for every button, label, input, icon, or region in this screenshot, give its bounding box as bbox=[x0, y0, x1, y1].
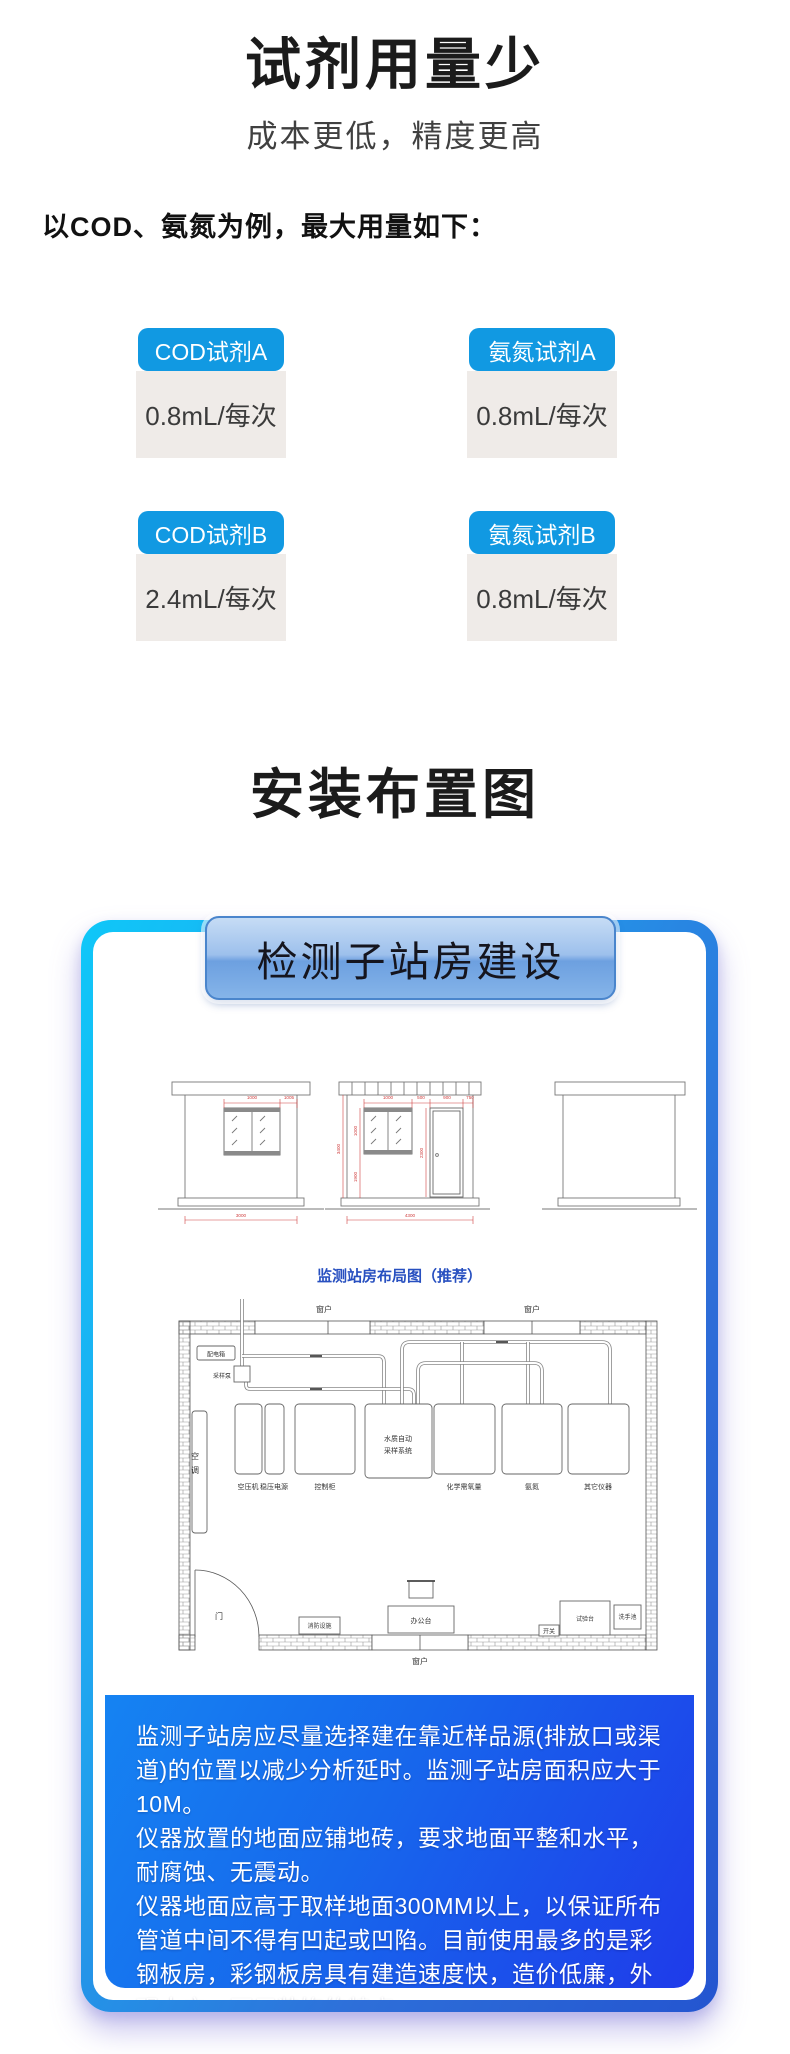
floor-plan-drawing: 窗户 窗户 窗户 门 配电箱 采样泵 空调 水质自动 采样系统 空压机 稳压电源… bbox=[162, 1294, 667, 1669]
reagent-value: 0.8mL/每次 bbox=[136, 371, 286, 458]
reagent-label-badge: COD试剂A bbox=[138, 328, 284, 371]
dim-label: 4300 bbox=[405, 1213, 416, 1218]
door-label: 门 bbox=[215, 1611, 223, 1621]
note-paragraph: 监测子站房应尽量选择建在靠近样品源(排放口或渠道)的位置以减少分析延时。监测子站… bbox=[136, 1719, 666, 1821]
reagent-label-badge: 氨氮试剂A bbox=[469, 328, 615, 371]
station-card: 1000 1005 3000 3400 1000 500 900 750 100… bbox=[81, 920, 718, 2012]
bench-label: 试验台 bbox=[576, 1615, 594, 1623]
equipment-label: 稳压电源 bbox=[260, 1482, 288, 1491]
dim-label: 1000 bbox=[247, 1095, 258, 1100]
dim-label: 1005 bbox=[284, 1095, 295, 1100]
station-card-body: 1000 1005 3000 3400 1000 500 900 750 100… bbox=[93, 932, 706, 2000]
page-title: 试剂用量少 bbox=[0, 20, 790, 101]
ac-label: 空调 bbox=[191, 1451, 200, 1480]
dim-label: 1000 bbox=[383, 1095, 394, 1100]
equipment-label: 空压机 bbox=[238, 1482, 259, 1491]
station-card-header: 检测子站房建设 bbox=[205, 916, 616, 1000]
reagent-label-badge: 氨氮试剂B bbox=[469, 511, 615, 554]
intro-text: 以COD、氨氮为例，最大用量如下： bbox=[42, 205, 497, 244]
reagent-card: 氨氮试剂A 0.8mL/每次 bbox=[467, 328, 617, 458]
sink-label: 洗手池 bbox=[618, 1613, 636, 1621]
pump-label: 采样泵 bbox=[213, 1372, 231, 1380]
desk-label: 办公台 bbox=[411, 1616, 432, 1625]
window-label: 窗户 bbox=[412, 1656, 428, 1666]
reagent-value: 0.8mL/每次 bbox=[467, 371, 617, 458]
dim-label: 3400 bbox=[336, 1143, 341, 1154]
dim-label: 1000 bbox=[353, 1125, 358, 1136]
reagent-card: COD试剂A 0.8mL/每次 bbox=[136, 328, 286, 458]
equipment-label: 控制柜 bbox=[315, 1482, 336, 1491]
page: 试剂用量少 成本更低，精度更高 以COD、氨氮为例，最大用量如下： COD试剂A… bbox=[0, 0, 790, 2054]
floor-plan-title: 监测站房布局图（推荐） bbox=[93, 1265, 706, 1286]
note-paragraph: 仪器地面应高于取样地面300MM以上，以保证所布管道中间不得有凹起或凹陷。目前使… bbox=[136, 1889, 666, 2000]
reagent-card: 氨氮试剂B 0.8mL/每次 bbox=[467, 511, 617, 641]
window-label: 窗户 bbox=[316, 1304, 332, 1314]
dim-label: 500 bbox=[417, 1095, 425, 1100]
power-box-label: 配电箱 bbox=[207, 1351, 225, 1359]
elevation-drawing: 1000 1005 3000 3400 1000 500 900 750 100… bbox=[112, 1067, 706, 1257]
switch-label: 开关 bbox=[543, 1628, 555, 1636]
sampler-label: 水质自动 bbox=[384, 1434, 412, 1443]
dim-label: 900 bbox=[443, 1095, 451, 1100]
reagent-label-badge: COD试剂B bbox=[138, 511, 284, 554]
window-label: 窗户 bbox=[524, 1304, 540, 1314]
dim-label: 3000 bbox=[236, 1213, 247, 1218]
page-subtitle: 成本更低，精度更高 bbox=[0, 111, 790, 156]
note-paragraph: 仪器放置的地面应铺地砖，要求地面平整和水平，耐腐蚀、无震动。 bbox=[136, 1821, 666, 1889]
fire-label: 消防设施 bbox=[307, 1622, 331, 1630]
sampler-label: 采样系统 bbox=[384, 1446, 412, 1455]
station-notes-panel: 监测子站房应尽量选择建在靠近样品源(排放口或渠道)的位置以减少分析延时。监测子站… bbox=[105, 1695, 694, 1988]
dim-label: 1900 bbox=[353, 1171, 358, 1182]
equipment-label: 氨氮 bbox=[525, 1482, 539, 1491]
equipment-label: 化学需氧量 bbox=[447, 1482, 482, 1491]
equipment-label: 其它仪器 bbox=[584, 1482, 612, 1491]
dim-label: 750 bbox=[466, 1095, 474, 1100]
dim-label: 2300 bbox=[419, 1147, 424, 1158]
reagent-value: 0.8mL/每次 bbox=[467, 554, 617, 641]
reagent-card: COD试剂B 2.4mL/每次 bbox=[136, 511, 286, 641]
reagent-value: 2.4mL/每次 bbox=[136, 554, 286, 641]
section-title: 安装布置图 bbox=[0, 750, 790, 829]
